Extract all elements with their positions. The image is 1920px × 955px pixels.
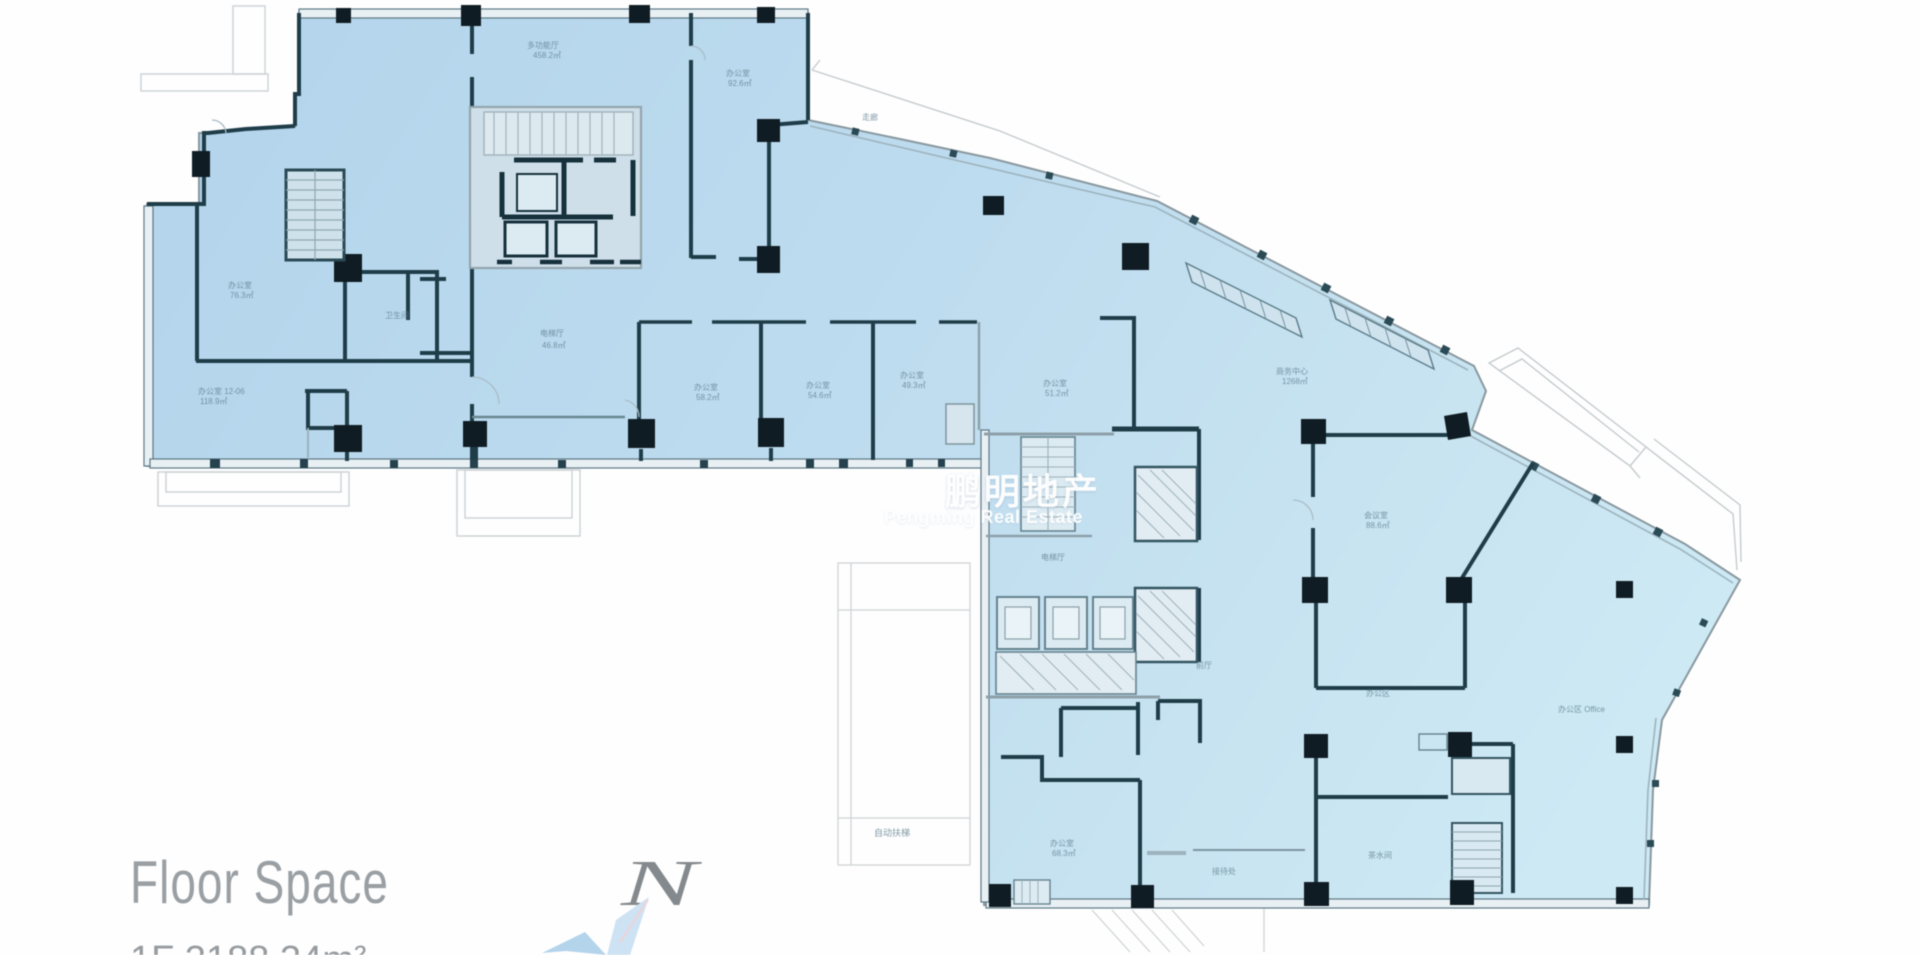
svg-text:58.2㎡: 58.2㎡	[696, 393, 720, 402]
svg-text:电梯厅: 电梯厅	[540, 328, 564, 338]
svg-text:鹏明地产: 鹏明地产	[945, 471, 1101, 512]
svg-text:76.3㎡: 76.3㎡	[230, 291, 254, 300]
svg-text:办公室: 办公室	[806, 380, 830, 390]
svg-text:办公区: 办公区	[1366, 688, 1390, 698]
svg-text:Floor Space: Floor Space	[130, 849, 389, 917]
svg-text:商务中心: 商务中心	[1276, 366, 1308, 376]
svg-text:46.8㎡: 46.8㎡	[542, 341, 566, 350]
svg-text:茶水间: 茶水间	[1368, 850, 1392, 860]
svg-text:办公室: 办公室	[228, 280, 252, 290]
svg-text:接待处: 接待处	[1212, 866, 1236, 876]
svg-text:68.3㎡: 68.3㎡	[1052, 849, 1076, 858]
svg-text:92.6㎡: 92.6㎡	[728, 79, 752, 88]
svg-text:办公区 Office: 办公区 Office	[1558, 704, 1606, 714]
svg-text:电梯厅: 电梯厅	[1041, 552, 1065, 562]
svg-text:卫生间: 卫生间	[385, 310, 409, 320]
svg-text:自动扶梯: 自动扶梯	[874, 827, 910, 838]
svg-text:办公室: 办公室	[900, 370, 924, 380]
svg-text:118.9㎡: 118.9㎡	[200, 397, 227, 406]
svg-text:会议室: 会议室	[1364, 510, 1388, 520]
svg-text:88.6㎡: 88.6㎡	[1366, 521, 1390, 530]
svg-text:51.2㎡: 51.2㎡	[1045, 389, 1069, 398]
svg-text:办公室: 办公室	[1050, 838, 1074, 848]
svg-text:1F 3188.34m²: 1F 3188.34m²	[130, 939, 367, 955]
svg-text:办公室: 办公室	[726, 68, 750, 78]
svg-text:54.6㎡: 54.6㎡	[808, 391, 832, 400]
svg-text:办公室: 办公室	[694, 382, 718, 392]
svg-text:多功能厅: 多功能厅	[527, 40, 559, 50]
svg-text:前厅: 前厅	[1196, 660, 1212, 670]
svg-text:1268㎡: 1268㎡	[1282, 377, 1308, 386]
svg-text:办公室: 办公室	[1043, 378, 1067, 388]
svg-text:458.2㎡: 458.2㎡	[533, 51, 561, 60]
svg-text:Pengming Real Estate: Pengming Real Estate	[884, 507, 1083, 527]
svg-text:办公室 12-06: 办公室 12-06	[198, 386, 245, 396]
svg-text:49.3㎡: 49.3㎡	[902, 381, 926, 390]
svg-text:走廊: 走廊	[862, 112, 878, 122]
